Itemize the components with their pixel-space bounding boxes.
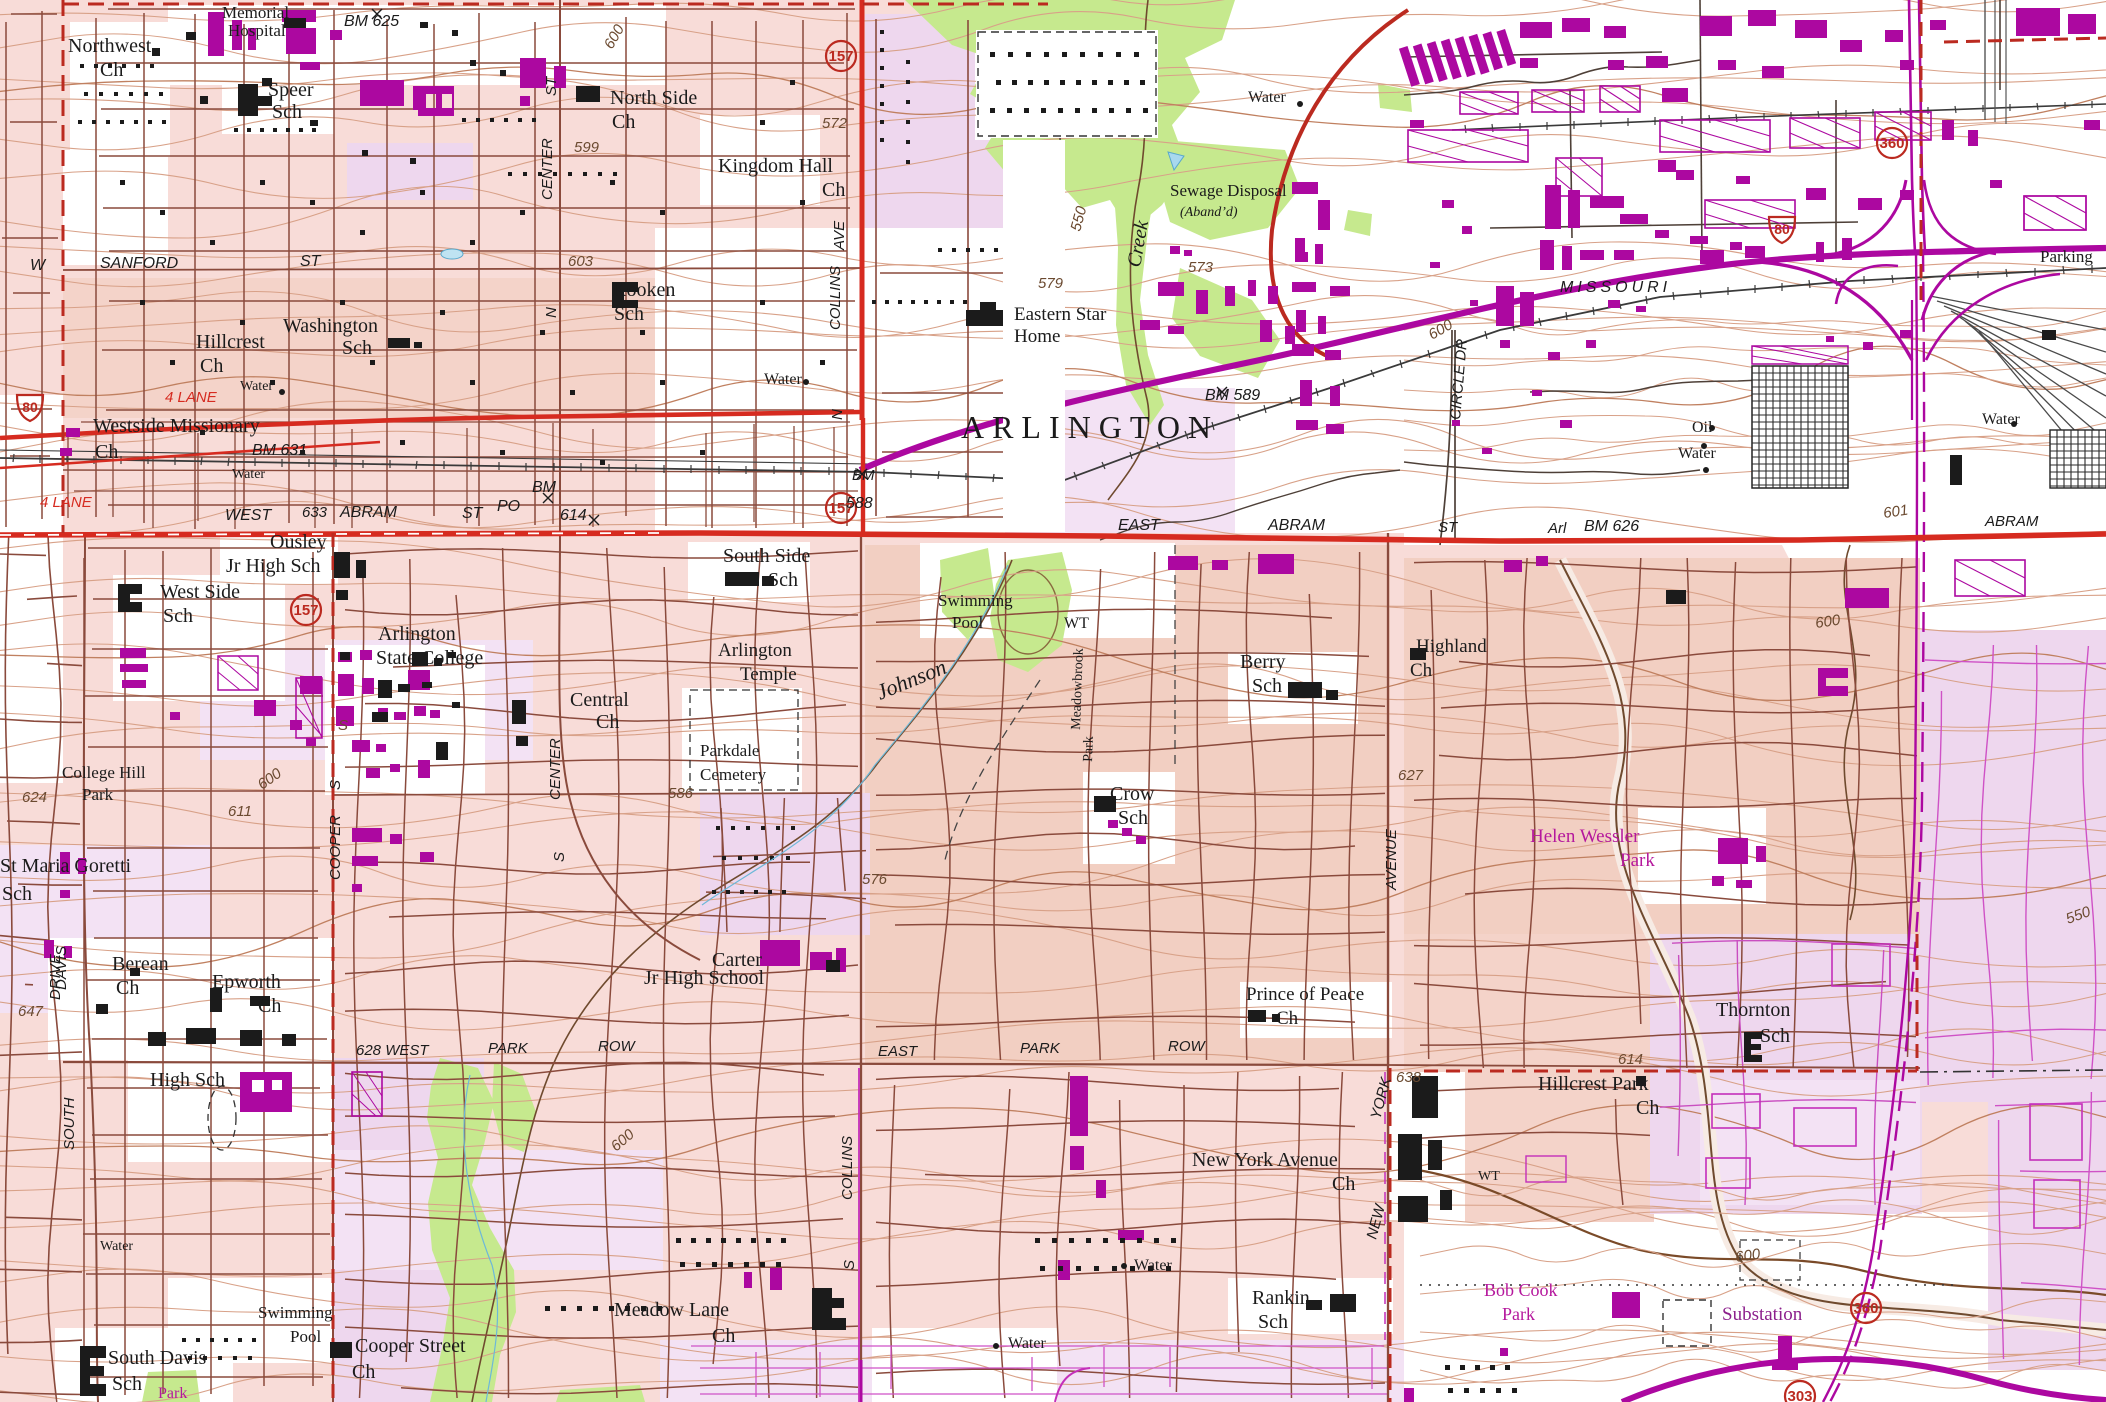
svg-text:Ch: Ch: [95, 441, 118, 463]
svg-text:Meadowbrook: Meadowbrook: [1069, 648, 1087, 730]
svg-text:WT: WT: [1478, 1169, 1500, 1184]
svg-text:EAST: EAST: [878, 1043, 919, 1060]
svg-text:Park: Park: [1502, 1304, 1535, 1324]
svg-text:BM 631: BM 631: [252, 442, 307, 459]
svg-text:Park: Park: [158, 1385, 187, 1402]
svg-text:SANFORD: SANFORD: [100, 255, 179, 272]
svg-text:Bob Cook: Bob Cook: [1484, 1280, 1558, 1300]
svg-text:PO: PO: [497, 498, 520, 515]
svg-text:CENTER: CENTER: [539, 138, 556, 200]
svg-text:Water: Water: [764, 371, 802, 388]
svg-text:ROW: ROW: [1168, 1038, 1207, 1055]
svg-text:Helen Wessler: Helen Wessler: [1530, 826, 1640, 847]
svg-text:Sewage Disposal: Sewage Disposal: [1170, 181, 1287, 200]
svg-text:Northwest: Northwest: [68, 35, 152, 57]
svg-text:North Side: North Side: [610, 87, 697, 109]
svg-text:PARK: PARK: [1020, 1040, 1061, 1057]
svg-text:628 WEST: 628 WEST: [356, 1042, 430, 1059]
svg-text:ABRAM: ABRAM: [339, 504, 398, 521]
svg-text:WEST: WEST: [225, 507, 272, 524]
svg-text:Parkdale: Parkdale: [700, 741, 759, 760]
svg-text:AVENUE: AVENUE: [1383, 828, 1400, 891]
svg-text:Hospital: Hospital: [228, 21, 286, 40]
svg-text:N: N: [829, 409, 846, 420]
svg-text:Berean: Berean: [112, 953, 169, 975]
svg-text:Jr High Sch: Jr High Sch: [226, 555, 320, 577]
svg-text:638: 638: [1396, 1069, 1422, 1086]
svg-text:586: 586: [668, 785, 694, 802]
svg-text:CENTER: CENTER: [547, 738, 564, 800]
svg-text:EAST: EAST: [1118, 517, 1161, 534]
svg-text:Hillcrest Park: Hillcrest Park: [1538, 1073, 1649, 1095]
svg-text:Epworth: Epworth: [212, 971, 281, 993]
svg-text:COOPER: COOPER: [327, 815, 344, 880]
svg-text:Hillcrest: Hillcrest: [196, 331, 265, 353]
svg-text:ST: ST: [1438, 519, 1459, 536]
svg-text:Sch: Sch: [2, 883, 32, 905]
svg-text:601: 601: [1882, 502, 1909, 522]
svg-text:633: 633: [302, 504, 328, 521]
svg-text:Kooken: Kooken: [612, 279, 675, 301]
svg-text:Home: Home: [1014, 326, 1060, 347]
svg-text:PARK: PARK: [488, 1040, 529, 1057]
svg-text:Ousley: Ousley: [270, 531, 327, 553]
svg-text:ST: ST: [300, 253, 322, 270]
svg-text:South Side: South Side: [723, 545, 810, 567]
svg-text:COLLINS: COLLINS: [827, 266, 844, 330]
svg-text:Arlington: Arlington: [378, 623, 456, 645]
svg-text:New York Avenue: New York Avenue: [1192, 1149, 1338, 1171]
svg-text:Sch: Sch: [342, 337, 372, 359]
svg-text:Water: Water: [1134, 1257, 1172, 1274]
svg-text:157: 157: [293, 602, 318, 619]
svg-text:Ch: Ch: [612, 111, 635, 133]
svg-text:Ch: Ch: [712, 1325, 735, 1347]
svg-text:624: 624: [22, 789, 47, 806]
svg-text:Ch: Ch: [352, 1361, 375, 1383]
svg-text:80: 80: [22, 399, 38, 415]
svg-text:Ch: Ch: [596, 711, 619, 733]
svg-text:Ch: Ch: [116, 977, 139, 999]
svg-text:Thornton: Thornton: [1716, 999, 1790, 1021]
svg-text:ST: ST: [543, 75, 560, 96]
svg-text:Cemetery: Cemetery: [700, 765, 767, 784]
svg-text:Central: Central: [570, 689, 629, 711]
svg-text:St Maria Goretti: St Maria Goretti: [0, 855, 132, 877]
svg-text:Sch: Sch: [163, 605, 193, 627]
svg-text:Kingdom Hall: Kingdom Hall: [718, 155, 833, 177]
svg-text:Arlington: Arlington: [718, 640, 792, 661]
svg-text:Crow: Crow: [1110, 783, 1155, 805]
svg-text:600: 600: [1734, 1246, 1762, 1266]
svg-text:Berry: Berry: [1240, 651, 1286, 673]
svg-text:BM 626: BM 626: [1584, 518, 1639, 535]
svg-text:BM 589: BM 589: [1205, 387, 1260, 404]
svg-text:Water: Water: [1248, 89, 1286, 106]
svg-text:S: S: [327, 780, 344, 790]
svg-text:599: 599: [574, 139, 600, 156]
svg-text:579: 579: [1038, 275, 1064, 292]
svg-text:Ch: Ch: [1276, 1008, 1299, 1029]
svg-text:Substation: Substation: [1722, 1304, 1803, 1325]
svg-text:ABRAM: ABRAM: [1267, 517, 1326, 534]
svg-text:360: 360: [1879, 135, 1904, 152]
svg-text:Highland: Highland: [1416, 636, 1487, 657]
svg-text:Ch: Ch: [822, 179, 845, 201]
svg-text:600: 600: [1814, 612, 1842, 632]
svg-text:Pool: Pool: [952, 613, 983, 632]
svg-text:West Side: West Side: [160, 581, 240, 603]
svg-text:588: 588: [846, 495, 873, 512]
svg-text:Park: Park: [82, 785, 114, 804]
svg-text:Sch: Sch: [112, 1373, 142, 1395]
svg-text:Ch: Ch: [1410, 660, 1433, 681]
svg-text:WT: WT: [1064, 615, 1089, 632]
svg-text:Water: Water: [100, 1239, 133, 1254]
svg-text:ST: ST: [462, 505, 484, 522]
svg-text:603: 603: [568, 253, 594, 270]
svg-text:80: 80: [1774, 221, 1790, 237]
svg-text:BM 625: BM 625: [344, 13, 399, 30]
svg-text:157: 157: [828, 48, 853, 65]
svg-text:4 LANE: 4 LANE: [40, 494, 93, 511]
svg-text:S: S: [551, 852, 568, 862]
svg-text:Sch: Sch: [1760, 1025, 1790, 1047]
svg-text:Speer: Speer: [268, 79, 314, 101]
svg-text:Cooper Street: Cooper Street: [355, 1335, 466, 1357]
svg-text:Water: Water: [1008, 1335, 1046, 1352]
svg-text:Jr High School: Jr High School: [644, 967, 764, 989]
svg-text:Ch: Ch: [1636, 1097, 1659, 1119]
svg-text:Sch: Sch: [1252, 675, 1282, 697]
svg-text:Meadow Lane: Meadow Lane: [614, 1299, 729, 1321]
svg-text:Eastern Star: Eastern Star: [1014, 304, 1107, 325]
svg-text:573: 573: [1188, 259, 1214, 276]
svg-text:Parking: Parking: [2040, 247, 2093, 266]
svg-text:Sch: Sch: [614, 303, 644, 325]
svg-text:Swimming: Swimming: [938, 591, 1013, 610]
svg-text:College Hill: College Hill: [62, 763, 146, 782]
svg-text:572: 572: [822, 115, 848, 132]
svg-text:Park: Park: [1081, 736, 1097, 762]
svg-text:Prince of Peace: Prince of Peace: [1246, 984, 1364, 1005]
svg-text:4 LANE: 4 LANE: [165, 389, 218, 406]
svg-text:State College: State College: [376, 647, 483, 669]
svg-text:COLLINS: COLLINS: [839, 1136, 856, 1200]
svg-text:Water: Water: [232, 467, 265, 482]
svg-text:Ch: Ch: [1332, 1173, 1355, 1195]
svg-text:W: W: [30, 257, 47, 274]
svg-text:647: 647: [18, 1003, 44, 1020]
svg-text:Temple: Temple: [740, 664, 797, 685]
svg-text:Westside Missionary: Westside Missionary: [93, 415, 260, 437]
svg-text:Memorial: Memorial: [222, 3, 289, 22]
svg-text:Sch: Sch: [272, 101, 302, 123]
svg-text:Rankin: Rankin: [1252, 1287, 1310, 1309]
svg-text:AVE: AVE: [831, 220, 848, 251]
svg-text:Arl: Arl: [1547, 520, 1567, 537]
svg-text:Pool: Pool: [290, 1327, 321, 1346]
svg-text:360: 360: [1853, 1300, 1878, 1317]
svg-text:N: N: [543, 307, 560, 318]
svg-text:Ch: Ch: [200, 355, 223, 377]
svg-text:MISSOURI: MISSOURI: [1560, 279, 1671, 296]
svg-text:Sch: Sch: [768, 569, 798, 591]
svg-text:SOUTH: SOUTH: [61, 1097, 78, 1150]
svg-text:Water: Water: [240, 379, 273, 394]
svg-text:Washington: Washington: [283, 315, 378, 337]
svg-text:Ch: Ch: [258, 995, 281, 1017]
svg-text:Water: Water: [1678, 445, 1716, 462]
svg-text:ABRAM: ABRAM: [1984, 513, 2039, 530]
svg-text:614: 614: [560, 507, 587, 524]
svg-text:303: 303: [1787, 1388, 1812, 1402]
svg-text:DAVIS: DAVIS: [53, 946, 70, 990]
svg-text:S: S: [338, 717, 348, 734]
svg-text:ROW: ROW: [598, 1038, 637, 1055]
svg-text:S: S: [841, 1260, 858, 1270]
svg-text:(Aband’d): (Aband’d): [1180, 205, 1238, 220]
svg-text:Park: Park: [1620, 850, 1655, 871]
svg-text:Ch: Ch: [100, 59, 123, 81]
svg-text:627: 627: [1398, 767, 1424, 784]
svg-text:614: 614: [1618, 1051, 1643, 1068]
svg-text:South Davis: South Davis: [108, 1347, 207, 1369]
svg-text:ARLINGTON: ARLINGTON: [961, 409, 1219, 445]
svg-text:Swimming: Swimming: [258, 1303, 333, 1322]
svg-text:Sch: Sch: [1118, 807, 1148, 829]
svg-text:576: 576: [862, 871, 888, 888]
svg-text:High Sch: High Sch: [150, 1069, 225, 1091]
svg-text:Sch: Sch: [1258, 1311, 1288, 1333]
svg-text:611: 611: [228, 803, 252, 820]
